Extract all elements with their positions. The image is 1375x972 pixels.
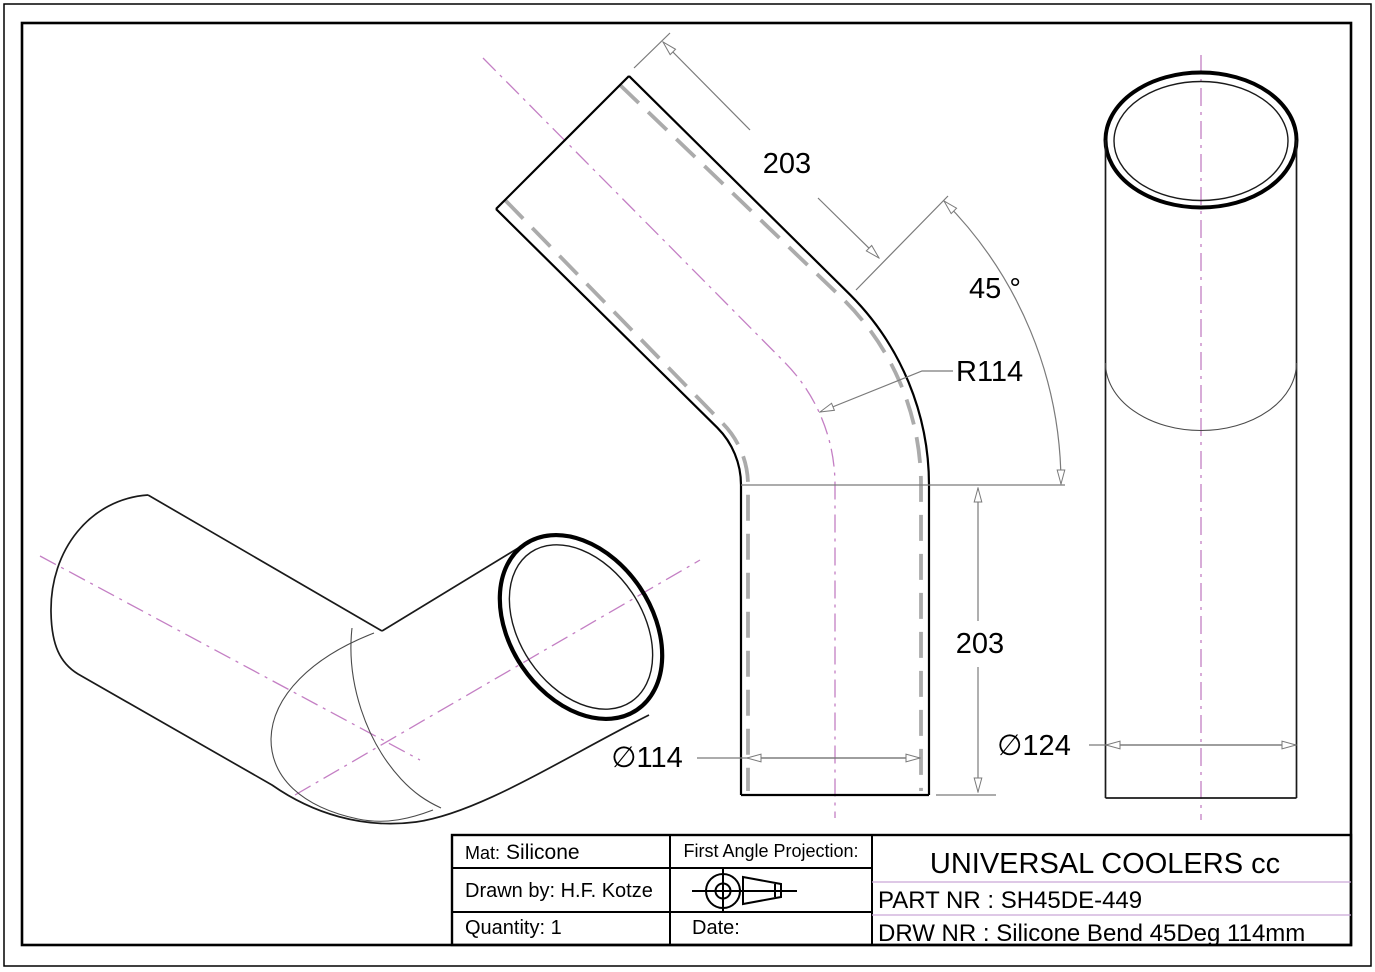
- material-label: Mat:: [465, 843, 500, 863]
- front-hidden-line-inner: [505, 200, 748, 791]
- dim-text-dia124: ∅124: [997, 730, 1071, 762]
- dim-line-203-diag-a: [663, 42, 750, 130]
- front-outline-outer: [629, 76, 929, 795]
- dim-arc-45deg: [944, 201, 1061, 484]
- dim-leader-r114: [820, 371, 953, 412]
- front-view: [483, 58, 929, 818]
- material-field: Mat:Silicone: [465, 841, 580, 864]
- date-label: Date:: [692, 917, 740, 939]
- drawing-number: DRW NR : Silicone Bend 45Deg 114mm: [878, 920, 1305, 947]
- inner-border: [22, 23, 1351, 945]
- side-view: [1106, 55, 1297, 820]
- dim-ext-line-cap: [634, 33, 670, 68]
- company-name: UNIVERSAL COOLERS cc: [930, 848, 1280, 880]
- dim-ext-line-45: [856, 196, 948, 290]
- drawn-by-field: Drawn by: H.F. Kotze: [465, 880, 653, 902]
- iso-bend-tangent-arc-right: [351, 628, 441, 808]
- title-block: Mat:Silicone Drawn by: H.F. Kotze Quanti…: [452, 835, 1351, 947]
- quantity-field: Quantity: 1: [465, 917, 562, 939]
- front-hidden-line-outer: [620, 85, 921, 791]
- part-number: PART NR : SH45DE-449: [878, 887, 1142, 914]
- iso-outline-top-left: [148, 495, 382, 631]
- dim-text-dia114: ∅114: [611, 742, 683, 774]
- iso-opening-outer-ellipse: [466, 504, 696, 749]
- drawing-sheet: 203 45 ° R114 203 ∅114 ∅124 Mat:Silicone…: [0, 0, 1375, 972]
- material-value: Silicone: [506, 841, 580, 864]
- front-end-cap: [496, 76, 629, 209]
- dim-text-r114: R114: [956, 356, 1023, 388]
- dim-text-203-diagonal: 203: [763, 148, 811, 180]
- projection-label: First Angle Projection:: [683, 841, 858, 861]
- cad-drawing: 203 45 ° R114 203 ∅114 ∅124 Mat:Silicone…: [0, 0, 1375, 972]
- first-angle-projection-icon: [692, 869, 797, 913]
- iso-bend-tangent-arc-left: [271, 633, 433, 821]
- dim-text-203-vertical: 203: [956, 628, 1004, 660]
- dim-text-45deg: 45 °: [969, 273, 1021, 305]
- iso-centerline-left-leg: [40, 556, 420, 760]
- dim-line-203-diag-b: [818, 198, 879, 258]
- dimensions: 203 45 ° R114 203 ∅114 ∅124: [611, 33, 1296, 795]
- iso-opening-inner-ellipse: [480, 518, 683, 736]
- isometric-view: [40, 495, 700, 824]
